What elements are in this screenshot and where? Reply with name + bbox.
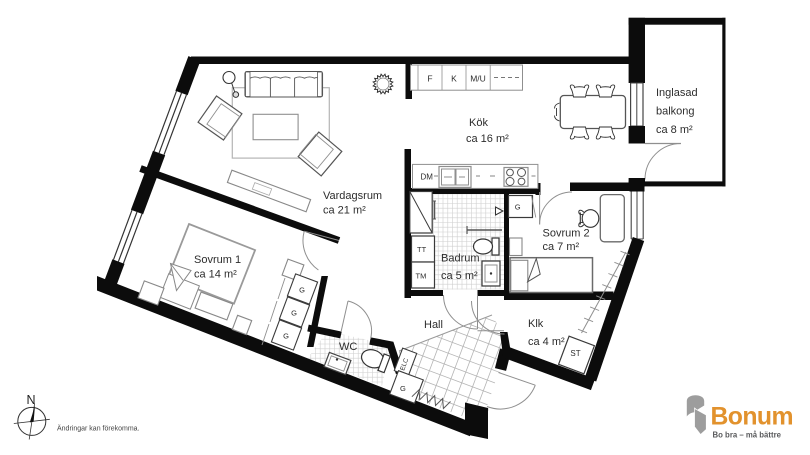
svg-text:ca 8 m²: ca 8 m² — [656, 124, 693, 136]
svg-text:Inglasad: Inglasad — [656, 87, 698, 99]
svg-text:K: K — [451, 74, 457, 84]
svg-text:ca 16 m²: ca 16 m² — [466, 133, 509, 145]
svg-text:balkong: balkong — [656, 106, 695, 118]
svg-text:WC: WC — [339, 341, 357, 353]
svg-text:TM: TM — [416, 272, 427, 281]
svg-text:F: F — [427, 74, 432, 84]
svg-text:Bo bra – må bättre: Bo bra – må bättre — [713, 431, 782, 440]
svg-text:Sovrum 1: Sovrum 1 — [194, 254, 241, 266]
svg-text:ST: ST — [570, 349, 580, 358]
svg-text:Klk: Klk — [528, 318, 544, 330]
svg-text:Bonum: Bonum — [711, 404, 793, 431]
svg-text:ca 4 m²: ca 4 m² — [528, 336, 565, 348]
svg-text:M/U: M/U — [470, 74, 486, 84]
svg-text:TT: TT — [417, 245, 427, 254]
svg-text:G: G — [515, 203, 521, 212]
svg-text:G: G — [291, 309, 297, 318]
svg-text:Hall: Hall — [424, 319, 443, 331]
svg-text:Sovrum 2: Sovrum 2 — [543, 228, 590, 240]
svg-text:Vardagsrum: Vardagsrum — [323, 190, 382, 202]
svg-text:Badrum: Badrum — [441, 253, 480, 265]
svg-text:DM: DM — [421, 173, 434, 182]
svg-text:Kök: Kök — [469, 117, 488, 129]
svg-text:ca 5 m²: ca 5 m² — [441, 270, 478, 282]
svg-text:ca 14 m²: ca 14 m² — [194, 269, 237, 281]
svg-text:G: G — [400, 384, 406, 393]
svg-text:G: G — [299, 286, 305, 295]
svg-text:G: G — [283, 332, 289, 341]
svg-text:Ändringar kan förekomma.: Ändringar kan förekomma. — [57, 425, 140, 433]
svg-text:ca 7 m²: ca 7 m² — [543, 241, 580, 253]
svg-text:ca 21 m²: ca 21 m² — [323, 205, 366, 217]
svg-text:N: N — [27, 393, 36, 407]
